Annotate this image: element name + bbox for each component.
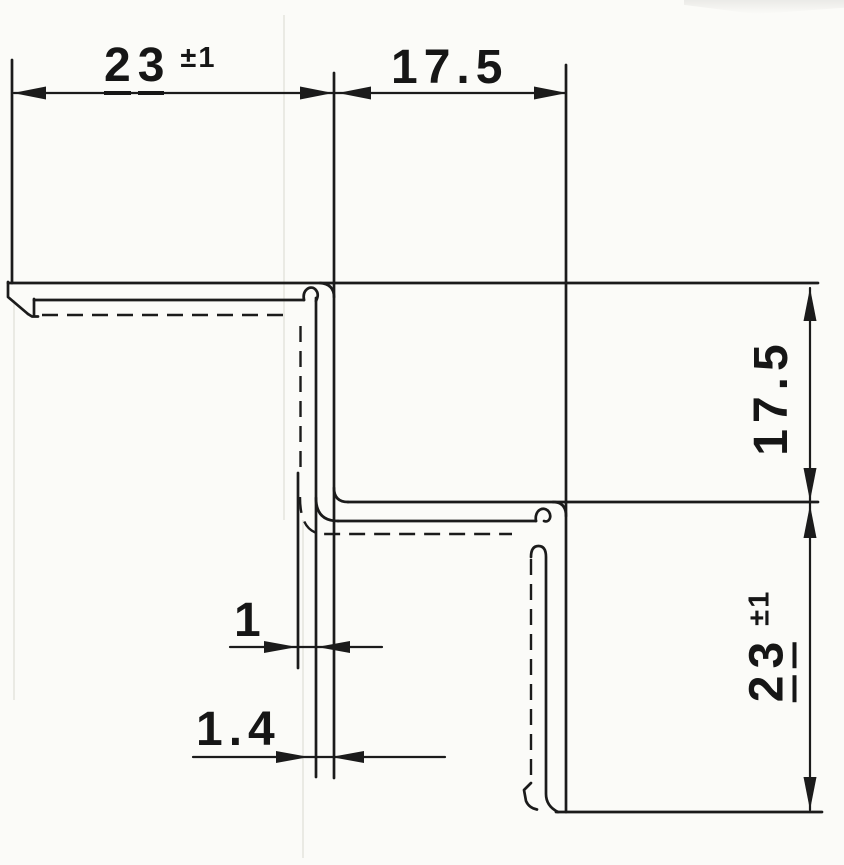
arrowhead-up-icon xyxy=(804,288,817,321)
arrowhead-right-icon xyxy=(534,87,567,100)
arrowhead-down-icon xyxy=(804,468,817,501)
dimension-tolerance: ±1 xyxy=(746,590,775,626)
dimension-tolerance: ±1 xyxy=(180,44,216,73)
dimension-value: 23 xyxy=(104,39,171,92)
dimension-label-bottom-flange-height: 23±1 xyxy=(744,590,797,702)
profile-hidden-lines xyxy=(42,315,531,783)
bottom-flange-hem-strip xyxy=(531,546,558,812)
step-hem-curl xyxy=(536,509,550,522)
arrowhead-left-icon xyxy=(331,751,364,763)
profile-drawing xyxy=(0,0,844,865)
drawing-canvas: 23±1 17.5 17.5 23±1 1 1.4 xyxy=(0,0,844,865)
arrowhead-right-icon xyxy=(276,751,309,763)
dimension-label-top-flange-width: 23±1 xyxy=(104,42,216,95)
arrowhead-left-icon xyxy=(338,87,371,100)
dimension-value: 23 xyxy=(741,635,794,702)
arrowhead-right-icon xyxy=(264,641,297,653)
step-outer-corner-arc xyxy=(553,502,566,516)
dimension-value: 1.4 xyxy=(196,703,281,756)
dimension-label-hem-thickness: 1.4 xyxy=(196,706,281,754)
top-flange-left-end-chamfer xyxy=(8,282,28,314)
dimension-lines xyxy=(14,93,810,810)
dimension-value: 1 xyxy=(234,594,267,647)
top-bend-arc xyxy=(320,283,334,297)
dimension-value: 17.5 xyxy=(391,41,508,94)
arrowhead-down-icon xyxy=(804,777,817,810)
profile-solid-outline xyxy=(8,60,822,812)
dimension-label-top-step-width: 17.5 xyxy=(391,44,508,92)
arrowhead-right-icon xyxy=(300,87,333,100)
arrowhead-up-icon xyxy=(804,505,817,538)
arrowhead-left-icon xyxy=(13,87,46,100)
step-inner-corner-arc xyxy=(334,488,348,502)
dimension-arrowheads xyxy=(13,87,817,811)
dimension-label-sheet-thickness: 1 xyxy=(234,597,267,645)
web-hem-curl xyxy=(304,288,318,301)
dimension-value: 17.5 xyxy=(745,338,798,455)
bottom-flange-end-flare xyxy=(524,783,537,810)
dimension-label-right-step-height: 17.5 xyxy=(748,338,796,455)
